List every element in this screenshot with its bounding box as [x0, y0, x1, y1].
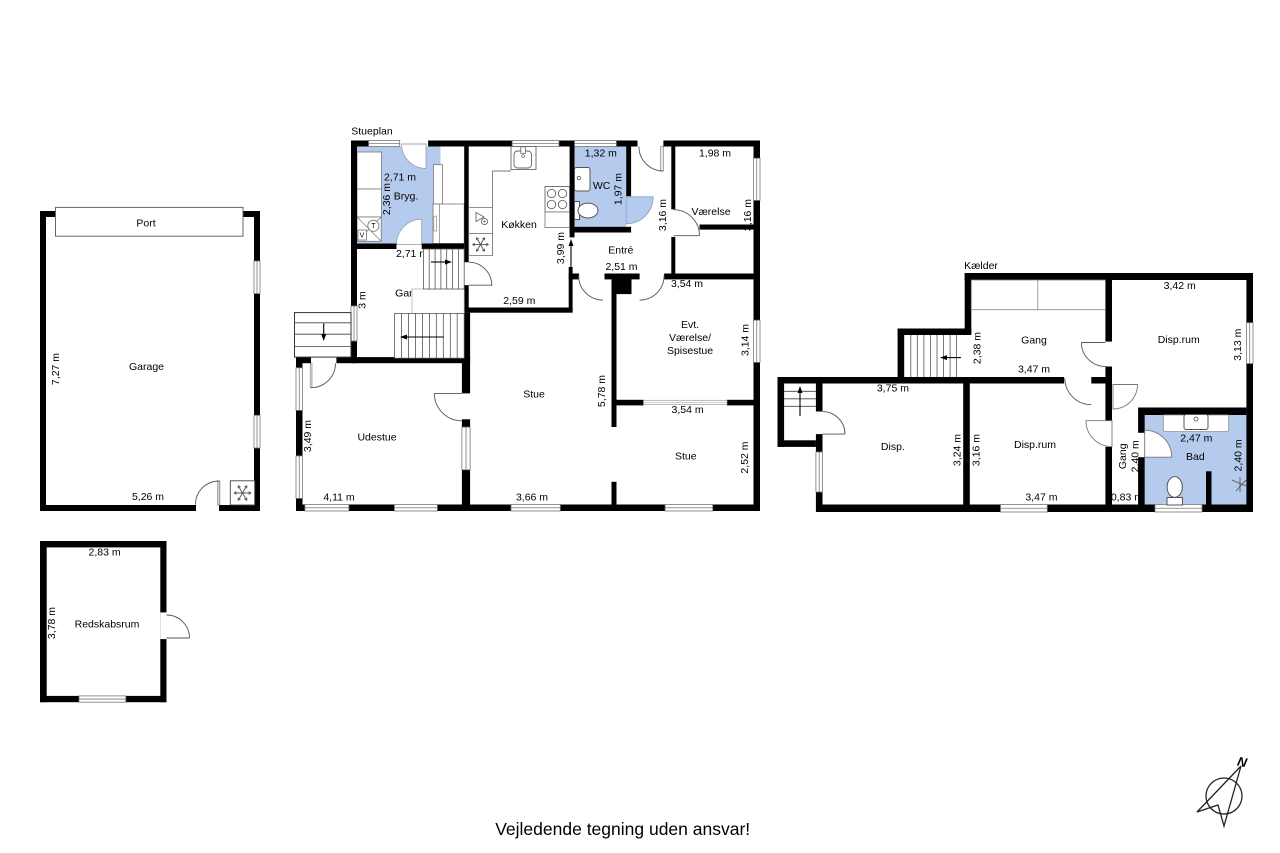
svg-text:2,59 m: 2,59 m	[503, 295, 535, 307]
svg-text:1,98 m: 1,98 m	[699, 147, 731, 159]
svg-text:Værelse: Værelse	[691, 206, 730, 218]
svg-text:5,26 m: 5,26 m	[132, 491, 164, 503]
svg-text:Disp.: Disp.	[881, 441, 905, 453]
svg-text:3,47 m: 3,47 m	[1018, 363, 1050, 375]
svg-text:Værelse/: Værelse/	[669, 332, 711, 344]
svg-text:Port: Port	[136, 217, 155, 229]
svg-text:2,36 m: 2,36 m	[381, 183, 393, 215]
svg-text:3,99 m: 3,99 m	[555, 232, 567, 264]
svg-text:3,54 m: 3,54 m	[671, 278, 703, 290]
svg-text:3,16 m: 3,16 m	[742, 199, 754, 231]
svg-text:Disp.rum: Disp.rum	[1014, 439, 1056, 451]
svg-text:Gang: Gang	[1021, 334, 1047, 346]
svg-text:1,32 m: 1,32 m	[585, 147, 617, 159]
svg-text:2,71 m: 2,71 m	[384, 171, 416, 183]
svg-text:Bryg.: Bryg.	[394, 190, 419, 202]
svg-text:3,16 m: 3,16 m	[970, 434, 982, 466]
svg-text:2,51 m: 2,51 m	[605, 261, 637, 273]
svg-text:3,13 m: 3,13 m	[1232, 328, 1244, 360]
svg-text:2,52 m: 2,52 m	[739, 441, 751, 473]
svg-text:3,24 m: 3,24 m	[951, 434, 963, 466]
svg-text:3,47 m: 3,47 m	[1025, 491, 1057, 503]
svg-text:Disp.rum: Disp.rum	[1158, 334, 1200, 346]
svg-text:Garage: Garage	[129, 361, 164, 373]
svg-text:5,78 m: 5,78 m	[596, 375, 608, 407]
svg-text:0,83 m: 0,83 m	[1111, 491, 1143, 503]
svg-text:3,16 m: 3,16 m	[657, 199, 669, 231]
svg-text:Vejledende tegning uden ansvar: Vejledende tegning uden ansvar!	[495, 819, 750, 839]
svg-text:Bad: Bad	[1186, 451, 1205, 463]
svg-text:Kælder: Kælder	[964, 260, 998, 272]
svg-text:1,97 m: 1,97 m	[613, 173, 625, 205]
svg-text:7,27 m: 7,27 m	[50, 353, 62, 385]
svg-text:2,47 m: 2,47 m	[1180, 432, 1212, 444]
svg-text:Redskabsrum: Redskabsrum	[75, 618, 140, 630]
svg-text:Stueplan: Stueplan	[351, 125, 393, 137]
svg-text:Udestue: Udestue	[357, 431, 396, 443]
svg-text:Køkken: Køkken	[501, 219, 537, 231]
svg-text:2,40 m: 2,40 m	[1129, 440, 1141, 472]
svg-text:T: T	[371, 223, 376, 230]
svg-text:3,49 m: 3,49 m	[302, 420, 314, 452]
svg-text:4,11 m: 4,11 m	[323, 491, 355, 503]
svg-text:Stue: Stue	[523, 388, 545, 400]
svg-text:Evt.: Evt.	[681, 319, 699, 331]
svg-text:3,14 m: 3,14 m	[739, 324, 751, 356]
svg-text:WC: WC	[593, 180, 611, 192]
svg-text:2,40 m: 2,40 m	[1232, 439, 1244, 471]
svg-text:3,78 m: 3,78 m	[46, 607, 58, 639]
svg-text:Gang: Gang	[1117, 443, 1129, 469]
svg-text:Stue: Stue	[675, 450, 697, 462]
svg-text:2,83 m: 2,83 m	[89, 546, 121, 558]
svg-text:Entré: Entré	[608, 244, 633, 256]
svg-text:3,54 m: 3,54 m	[672, 404, 704, 416]
svg-text:2,38 m: 2,38 m	[972, 332, 984, 364]
svg-text:Spisestue: Spisestue	[667, 345, 713, 357]
svg-text:3 m: 3 m	[356, 291, 368, 309]
svg-text:3,42 m: 3,42 m	[1164, 280, 1196, 292]
svg-text:V: V	[360, 232, 365, 239]
svg-text:3,75 m: 3,75 m	[877, 382, 909, 394]
svg-text:3,66 m: 3,66 m	[516, 491, 548, 503]
